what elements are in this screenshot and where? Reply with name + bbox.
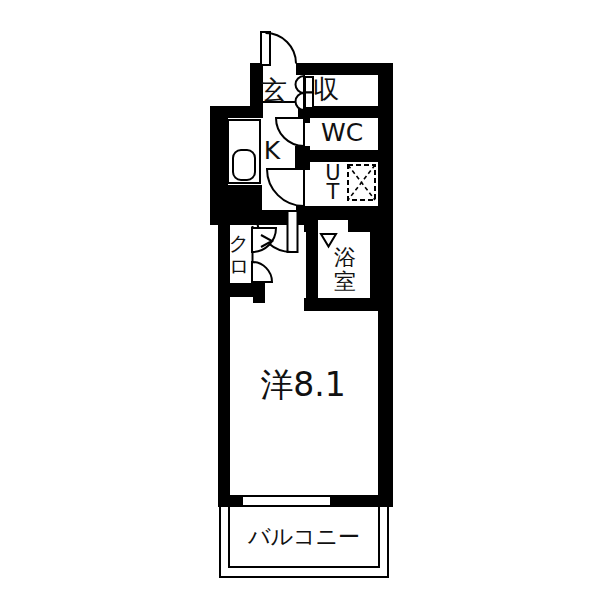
balcony-label: バルコニー <box>229 525 379 548</box>
closet-label: クロ <box>228 232 250 278</box>
entrance-label: 玄 <box>259 77 289 104</box>
utility-label: UT <box>324 164 342 202</box>
kitchen-label: K <box>258 138 286 164</box>
storage-folding-door-fan <box>296 93 305 110</box>
floor-plan: 玄 収 WC K UT 浴室 クロ 洋8.1 バルコニー <box>0 0 600 600</box>
bathroom-label: 浴室 <box>333 246 357 294</box>
main-room-label: 洋8.1 <box>228 368 378 403</box>
storage-folding-door-fan <box>296 76 305 93</box>
storage-label: 収 <box>311 76 341 103</box>
closet-folding-door-fan <box>252 262 272 282</box>
entrance-door-leaf <box>261 32 270 65</box>
wc-label: WC <box>316 120 368 146</box>
utility-door-swing <box>267 169 304 206</box>
room-door-leaf <box>288 211 298 252</box>
fixtures-overlay <box>0 0 600 600</box>
kitchen-sink <box>233 150 255 180</box>
closet-folding-door-fan <box>252 228 276 252</box>
